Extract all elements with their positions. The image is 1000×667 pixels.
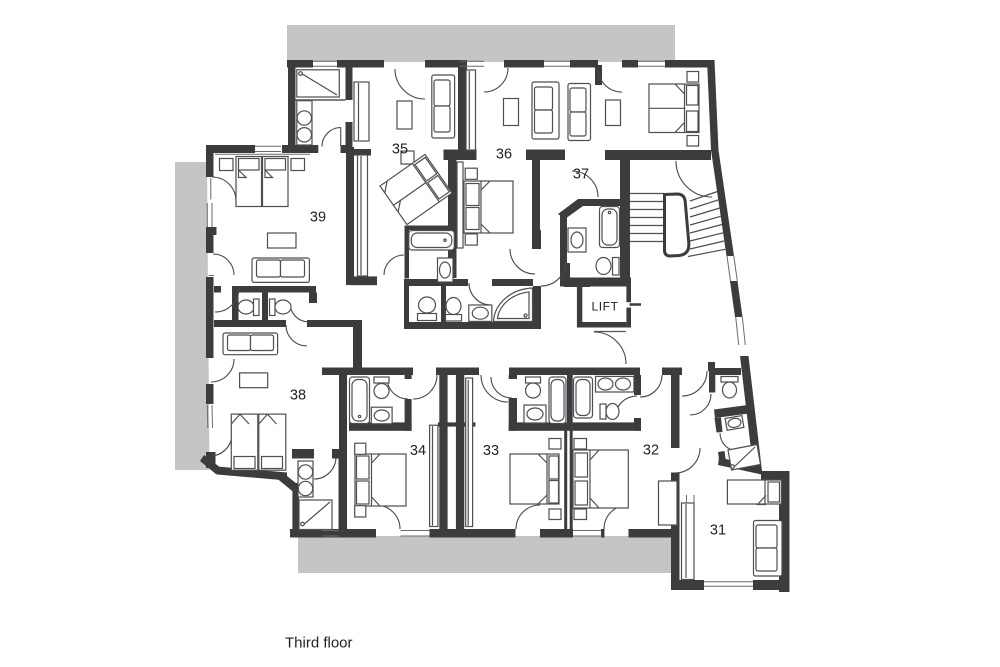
svg-text:35: 35	[392, 142, 408, 158]
svg-text:Third floor: Third floor	[285, 635, 353, 652]
svg-text:31: 31	[710, 523, 726, 539]
svg-text:34: 34	[410, 443, 426, 459]
svg-text:32: 32	[643, 443, 659, 459]
svg-text:38: 38	[290, 388, 306, 404]
svg-text:LIFT: LIFT	[591, 300, 618, 314]
svg-text:37: 37	[573, 167, 589, 183]
svg-text:39: 39	[310, 210, 326, 226]
svg-text:36: 36	[496, 147, 512, 163]
svg-text:33: 33	[483, 443, 499, 459]
